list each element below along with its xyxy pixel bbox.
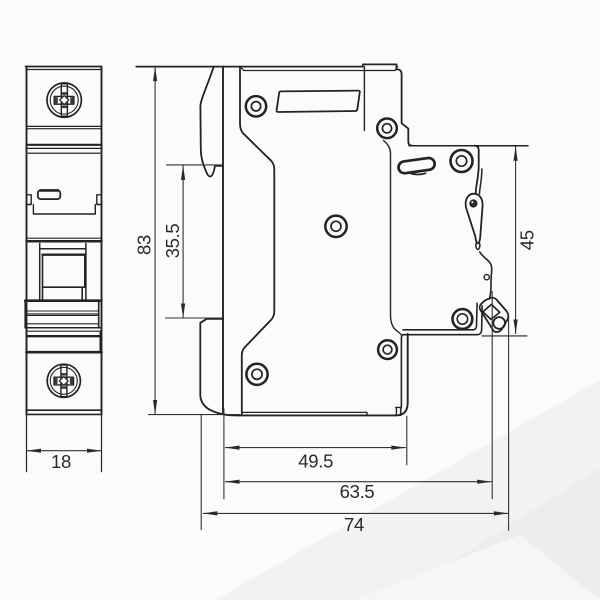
svg-text:35.5: 35.5	[162, 224, 183, 259]
svg-text:49.5: 49.5	[298, 451, 333, 472]
svg-text:74: 74	[344, 514, 364, 535]
svg-text:63.5: 63.5	[340, 481, 375, 502]
svg-text:18: 18	[51, 451, 71, 472]
svg-text:45: 45	[517, 230, 538, 250]
svg-text:83: 83	[134, 235, 155, 255]
